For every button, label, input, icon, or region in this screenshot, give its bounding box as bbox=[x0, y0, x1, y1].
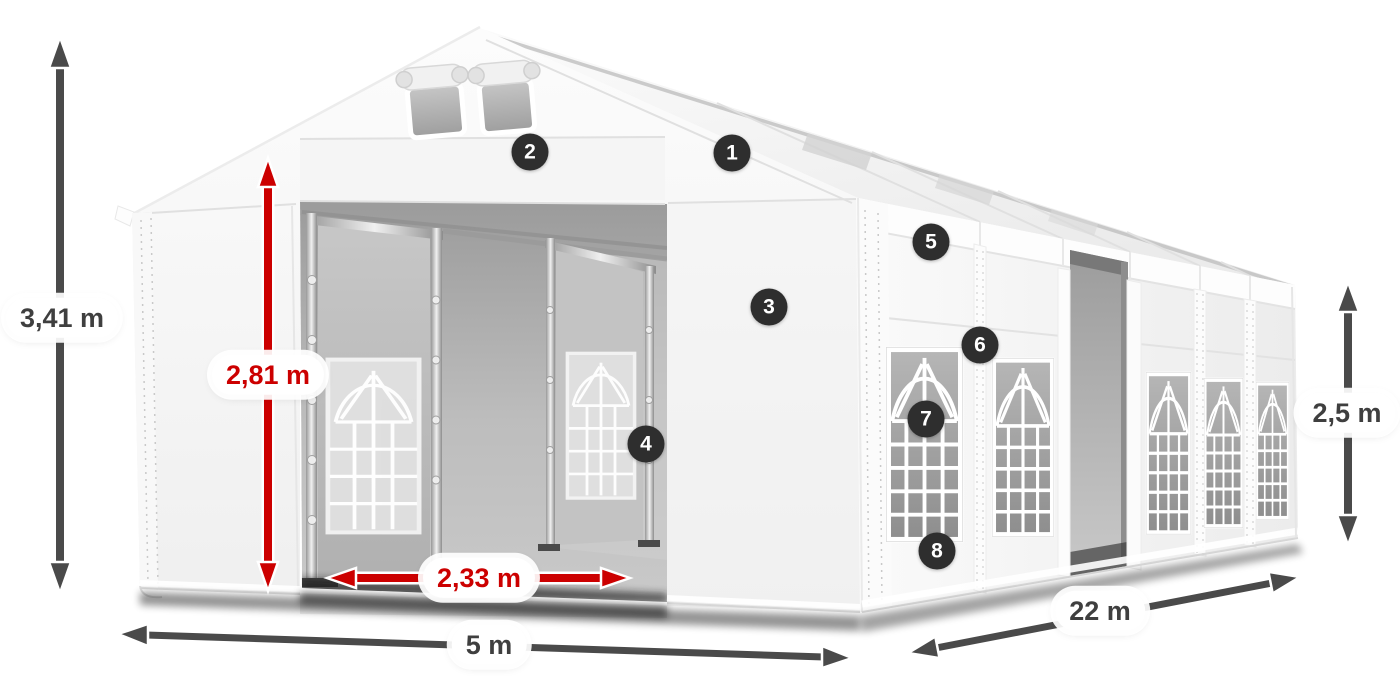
feature-marker-2: 2 bbox=[512, 134, 549, 171]
feature-marker-4: 4 bbox=[628, 426, 665, 463]
dimension-label-side-height: 2,5 m bbox=[1298, 393, 1395, 433]
tent-dimension-diagram: 3,41 m 2,81 m 2,33 m 5 m 22 m 2,5 m 1 2 … bbox=[0, 0, 1400, 700]
side-door-opening bbox=[1058, 250, 1141, 577]
tent-illustration bbox=[0, 0, 1400, 700]
feature-marker-3: 3 bbox=[751, 289, 788, 326]
feature-marker-8: 8 bbox=[919, 533, 956, 570]
feature-marker-6: 6 bbox=[962, 327, 999, 364]
dimension-label-width: 5 m bbox=[452, 625, 527, 665]
feature-marker-7: 7 bbox=[908, 401, 945, 438]
dimension-label-entrance-width: 2,33 m bbox=[423, 558, 535, 598]
feature-marker-5: 5 bbox=[913, 224, 950, 261]
inner-door-left bbox=[296, 213, 450, 587]
entrance-interior bbox=[296, 200, 667, 602]
dimension-label-total-height: 3,41 m bbox=[6, 298, 118, 338]
feature-marker-1: 1 bbox=[714, 135, 751, 172]
dimension-label-entrance-height: 2,81 m bbox=[212, 355, 324, 395]
entrance-lintel bbox=[300, 136, 665, 202]
inner-door-right bbox=[538, 238, 660, 551]
dimension-label-length: 22 m bbox=[1055, 591, 1145, 631]
